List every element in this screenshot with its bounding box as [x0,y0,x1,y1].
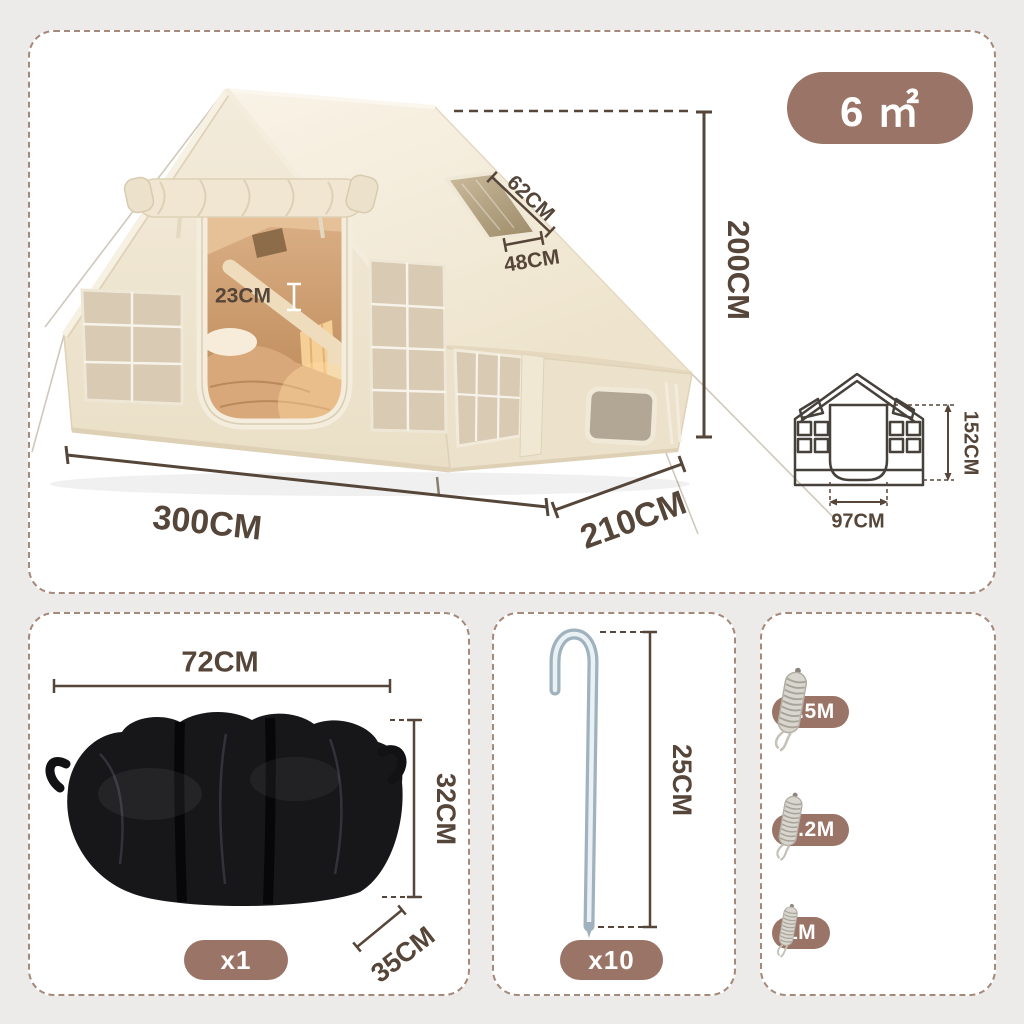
carry-bag-panel: 72CM 32CM 35CM x1 [28,612,470,996]
side-small-window [587,388,656,443]
front-view-diagram: 152CM 97CM [795,374,982,532]
rope-row: 2.5M [772,664,990,760]
rope-icon [772,902,803,960]
rope-icon [772,790,807,864]
tent-dimensions-panel: 23CM 200CM 62CM 48CM [28,30,996,594]
area-badge-label: 6 ㎡ [840,78,920,139]
carry-bag-illustration: 72CM 32CM 35CM [30,614,468,994]
bag-drawing [50,712,403,906]
bag-width-dimension: 72CM [54,647,390,693]
rope-icon [772,664,810,756]
front-right-mesh-window [370,260,446,432]
stake-panel: 25CM x10 [492,612,736,996]
stake-length-dimension: 25CM [598,632,697,927]
depth-dimension: 210CM [552,456,691,557]
tent-ground-shadow [50,472,690,496]
stake-illustration: 25CM [494,614,734,994]
rope-panel: 2.5M 2.2M [760,612,996,996]
door-width-dimension: 97CM [829,482,888,532]
bag-depth-dimension: 35CM [353,905,440,988]
width-dim-label: 300CM [151,498,264,547]
stake-quantity-label: x10 [588,945,634,976]
door-width-label: 97CM [831,510,884,532]
diagram-windows [798,399,920,452]
stake-drawing [555,634,594,938]
door-height-label: 152CM [960,411,982,475]
rope-row: 1M [772,902,990,964]
bag-quantity-label: x1 [221,945,252,976]
bag-height-label: 32CM [431,773,461,845]
corner-air-beam [520,354,544,457]
stake-length-label: 25CM [667,744,697,816]
bag-quantity-badge: x1 [184,940,288,980]
bag-width-label: 72CM [181,647,258,679]
front-left-mesh-window [82,290,182,404]
area-badge: 6 ㎡ [787,72,973,144]
depth-dim-label: 210CM [575,484,691,557]
rope-row: 2.2M [772,790,990,870]
tube-dim-label: 23CM [215,285,271,308]
stake-quantity-badge: x10 [560,940,663,980]
height-dim-label: 200CM [721,220,756,320]
